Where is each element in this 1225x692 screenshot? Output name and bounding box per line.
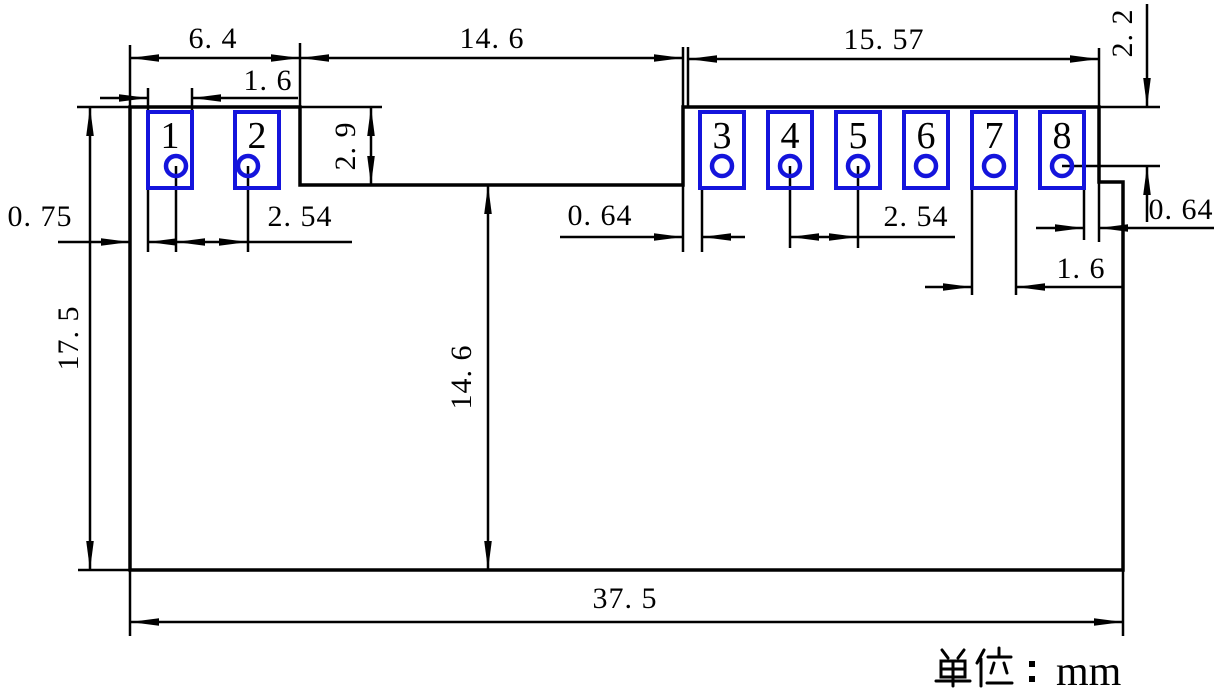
pad-numbers: 1 2 3 4 5 6 7 8 bbox=[161, 115, 1072, 157]
dim-2-9-label: 2. 9 bbox=[329, 122, 362, 171]
drawing-svg: 1 2 3 4 5 6 7 8 bbox=[0, 0, 1225, 692]
unit-label-colon bbox=[1029, 661, 1035, 682]
pad-number-3: 3 bbox=[713, 115, 732, 157]
dim-2-2-label: 2. 2 bbox=[1106, 9, 1139, 58]
dim-1-6-left-label: 1. 6 bbox=[244, 64, 293, 97]
dim-15-57-label: 15. 57 bbox=[844, 23, 925, 56]
pads bbox=[148, 112, 1084, 188]
pad-number-7: 7 bbox=[985, 115, 1004, 157]
dim-0-64-mid-label: 0. 64 bbox=[568, 199, 633, 232]
dim-6-4-label: 6. 4 bbox=[189, 22, 238, 55]
pad-number-8: 8 bbox=[1053, 115, 1072, 157]
pad-number-6: 6 bbox=[917, 115, 936, 157]
dim-37-5-label: 37. 5 bbox=[593, 582, 658, 615]
dimension-labels: 6. 4 14. 6 15. 57 1. 6 2. 9 2. 2 0. 75 2… bbox=[8, 9, 1214, 616]
pad-number-5: 5 bbox=[849, 115, 868, 157]
dim-0-64-right-label: 0. 64 bbox=[1149, 193, 1214, 226]
pad-number-4: 4 bbox=[781, 115, 800, 157]
pad-hole bbox=[916, 156, 936, 176]
dim-14-6-vert-label: 14. 6 bbox=[445, 345, 478, 410]
unit-value-text: mm bbox=[1056, 649, 1122, 692]
unit-label-cjk-dan bbox=[936, 650, 970, 686]
dim-14-6-top-label: 14. 6 bbox=[460, 22, 525, 55]
pad-number-2: 2 bbox=[248, 115, 267, 157]
dim-17-5-label: 17. 5 bbox=[52, 306, 85, 371]
technical-drawing: 1 2 3 4 5 6 7 8 bbox=[0, 0, 1225, 692]
dim-2-54-right-label: 2. 54 bbox=[884, 200, 949, 233]
pad-hole bbox=[984, 156, 1004, 176]
dimension-lines bbox=[58, 4, 1214, 622]
unit-label-cjk-wei bbox=[977, 648, 1012, 686]
pad-hole bbox=[712, 156, 732, 176]
dim-1-6-right-label: 1. 6 bbox=[1057, 252, 1106, 285]
dim-0-75-label: 0. 75 bbox=[8, 200, 73, 233]
unit-label: mm bbox=[936, 648, 1122, 692]
pad-number-1: 1 bbox=[161, 115, 180, 157]
dim-2-54-left-label: 2. 54 bbox=[268, 200, 333, 233]
